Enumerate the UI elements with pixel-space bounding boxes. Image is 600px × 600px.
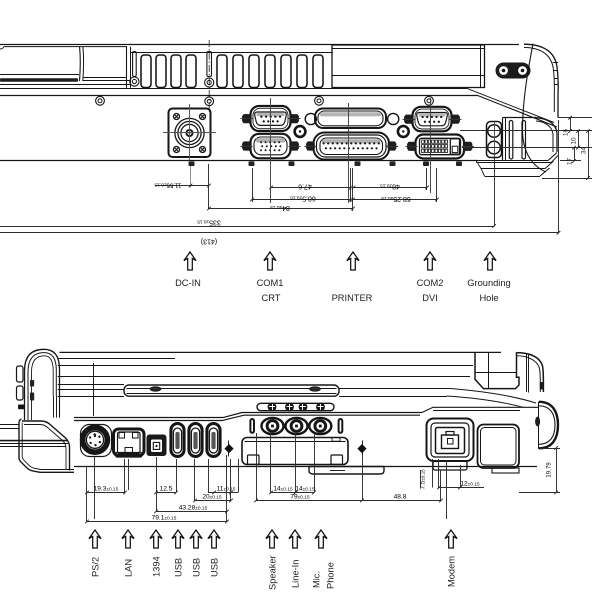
svg-text:47.6: 47.6 [298,183,312,190]
svg-text:12±0.15: 12±0.15 [460,481,480,488]
svg-text:14±0.15: 14±0.15 [273,486,293,493]
svg-text:48.8: 48.8 [394,494,407,501]
svg-text:60.5±0.15: 60.5±0.15 [290,195,316,202]
svg-text:12.5: 12.5 [160,486,173,493]
svg-text:20±0.15: 20±0.15 [202,494,222,501]
svg-text:48±0.15: 48±0.15 [380,183,400,190]
svg-text:Phone: Phone [325,562,335,589]
svg-text:34: 34 [580,147,587,155]
svg-text:84±0.15: 84±0.15 [270,204,290,211]
svg-text:DC-IN: DC-IN [175,278,201,288]
svg-text:16: 16 [562,129,569,137]
svg-text:PRINTER: PRINTER [332,293,373,303]
svg-text:Grounding: Grounding [467,278,510,288]
svg-text:LAN: LAN [123,559,133,577]
svg-text:19.79: 19.79 [546,462,553,478]
svg-text:10: 10 [570,137,577,145]
svg-text:Line-In: Line-In [290,560,300,588]
svg-text:(413): (413) [201,238,217,245]
svg-text:11.55±0.15: 11.55±0.15 [154,182,181,189]
svg-text:Speaker: Speaker [267,555,277,590]
svg-text:DVI: DVI [422,293,438,303]
svg-text:7.5±0.15: 7.5±0.15 [420,469,427,490]
svg-text:17: 17 [566,158,573,166]
svg-text:COM2: COM2 [417,278,444,288]
svg-text:335±0.15: 335±0.15 [197,218,221,225]
svg-text:COM1: COM1 [257,278,284,288]
svg-text:11±0.15: 11±0.15 [217,486,236,493]
svg-text:14±0.15: 14±0.15 [295,486,315,493]
svg-text:USB: USB [209,558,219,577]
svg-text:Modem: Modem [446,556,456,587]
svg-text:79±0.15: 79±0.15 [290,494,310,501]
svg-text:68.25±0.15: 68.25±0.15 [381,195,411,202]
svg-text:43.28±0.15: 43.28±0.15 [179,505,208,512]
svg-text:PS/2: PS/2 [90,557,100,577]
svg-text:CRT: CRT [262,293,281,303]
svg-text:1394: 1394 [151,556,161,577]
svg-text:USB: USB [173,558,183,577]
svg-text:Hole: Hole [479,293,498,303]
svg-text:USB: USB [191,558,201,577]
svg-text:19.3±0.15: 19.3±0.15 [94,486,119,493]
svg-text:79.1±0.15: 79.1±0.15 [152,515,177,522]
svg-text:Mic.: Mic. [311,571,321,588]
